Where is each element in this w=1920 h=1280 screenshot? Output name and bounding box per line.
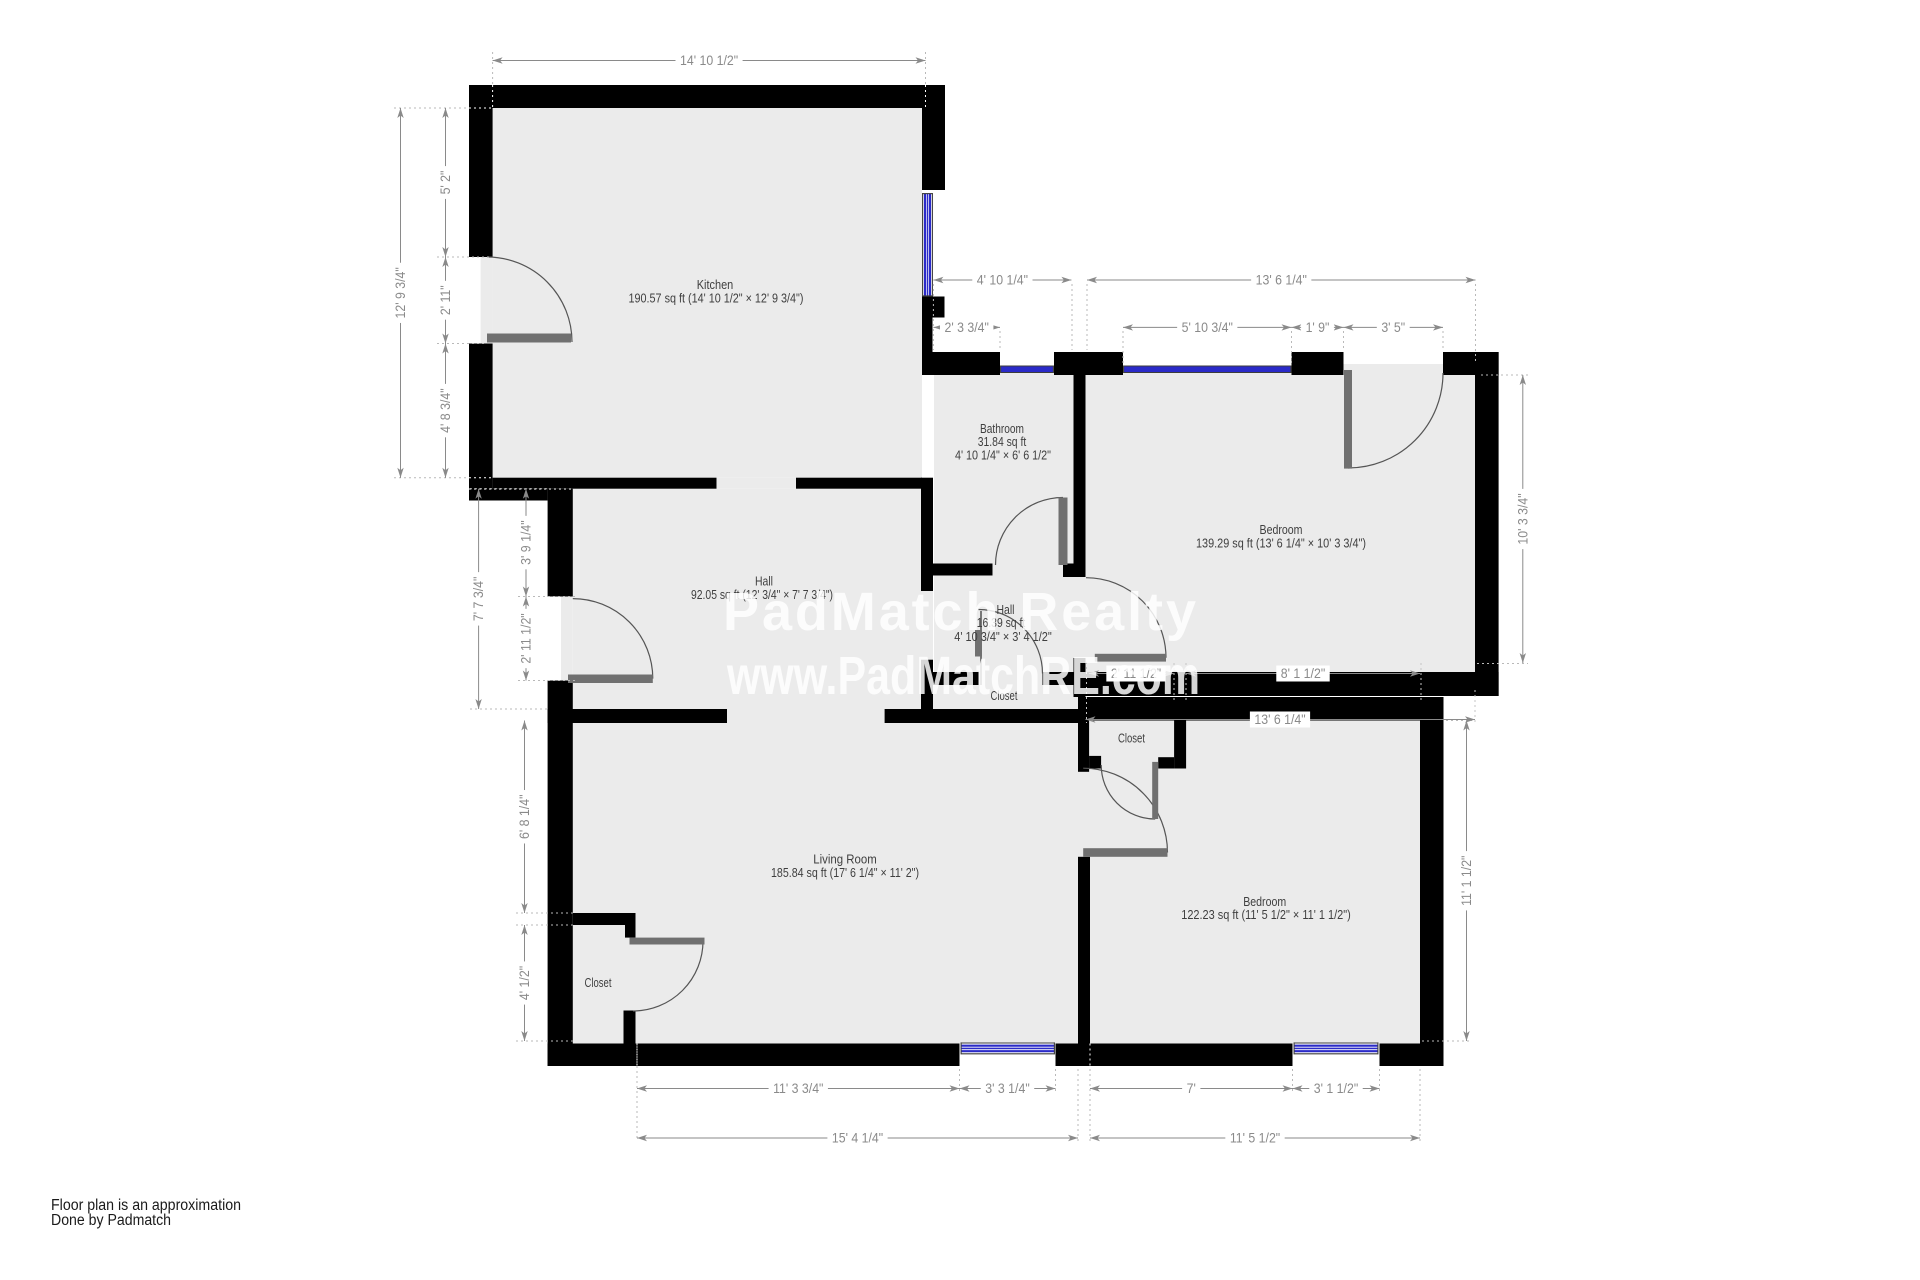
svg-text:190.57 sq ft (14' 10 1/2" × 12: 190.57 sq ft (14' 10 1/2" × 12' 9 3/4") (629, 291, 804, 306)
svg-text:14' 10 1/2": 14' 10 1/2" (680, 52, 738, 68)
svg-text:4' 10 1/4": 4' 10 1/4" (977, 272, 1028, 288)
svg-text:7' 7 3/4": 7' 7 3/4" (470, 577, 486, 621)
svg-text:10' 3 3/4": 10' 3 3/4" (1514, 493, 1530, 544)
svg-text:4' 10 1/4" × 6' 6 1/2": 4' 10 1/4" × 6' 6 1/2" (955, 448, 1051, 463)
svg-text:5' 2": 5' 2" (437, 171, 453, 195)
svg-text:11' 5 1/2": 11' 5 1/2" (1230, 1130, 1280, 1146)
svg-text:2' 3 3/4": 2' 3 3/4" (944, 319, 988, 335)
svg-text:12' 9 3/4": 12' 9 3/4" (392, 267, 408, 318)
svg-text:8' 1 1/2": 8' 1 1/2" (1281, 665, 1325, 681)
svg-text:5' 10 3/4": 5' 10 3/4" (1182, 319, 1233, 335)
svg-text:11' 1 1/2": 11' 1 1/2" (1458, 856, 1474, 906)
svg-text:11' 3 3/4": 11' 3 3/4" (773, 1080, 823, 1096)
svg-text:7': 7' (1187, 1080, 1196, 1096)
svg-text:Closet: Closet (1118, 731, 1145, 746)
svg-text:4' 1/2": 4' 1/2" (516, 966, 532, 1000)
svg-text:www.PadMatchRE.com: www.PadMatchRE.com (726, 646, 1200, 706)
svg-text:13' 6 1/4": 13' 6 1/4" (1254, 711, 1305, 727)
svg-text:3' 5": 3' 5" (1381, 319, 1405, 335)
svg-text:2' 11 1/2": 2' 11 1/2" (518, 613, 534, 663)
svg-text:139.29 sq ft (13' 6 1/4" × 10': 139.29 sq ft (13' 6 1/4" × 10' 3 3/4") (1196, 536, 1366, 551)
svg-text:Done by Padmatch: Done by Padmatch (51, 1212, 171, 1229)
svg-text:1' 9": 1' 9" (1306, 319, 1330, 335)
svg-text:3' 9 1/4": 3' 9 1/4" (518, 520, 534, 564)
svg-text:13' 6 1/4": 13' 6 1/4" (1256, 272, 1307, 288)
svg-text:4' 8 3/4": 4' 8 3/4" (437, 388, 453, 432)
svg-text:3' 1 1/2": 3' 1 1/2" (1314, 1080, 1358, 1096)
svg-text:185.84 sq ft (17' 6 1/4" × 11': 185.84 sq ft (17' 6 1/4" × 11' 2") (771, 865, 919, 880)
svg-text:3' 3 1/4": 3' 3 1/4" (985, 1080, 1029, 1096)
svg-text:Closet: Closet (585, 975, 612, 990)
svg-text:2' 11": 2' 11" (437, 285, 453, 315)
svg-text:15' 4 1/4": 15' 4 1/4" (832, 1130, 883, 1146)
svg-text:122.23 sq ft (11' 5 1/2" × 11': 122.23 sq ft (11' 5 1/2" × 11' 1 1/2") (1181, 907, 1351, 922)
svg-text:6' 8 1/4": 6' 8 1/4" (516, 795, 532, 839)
